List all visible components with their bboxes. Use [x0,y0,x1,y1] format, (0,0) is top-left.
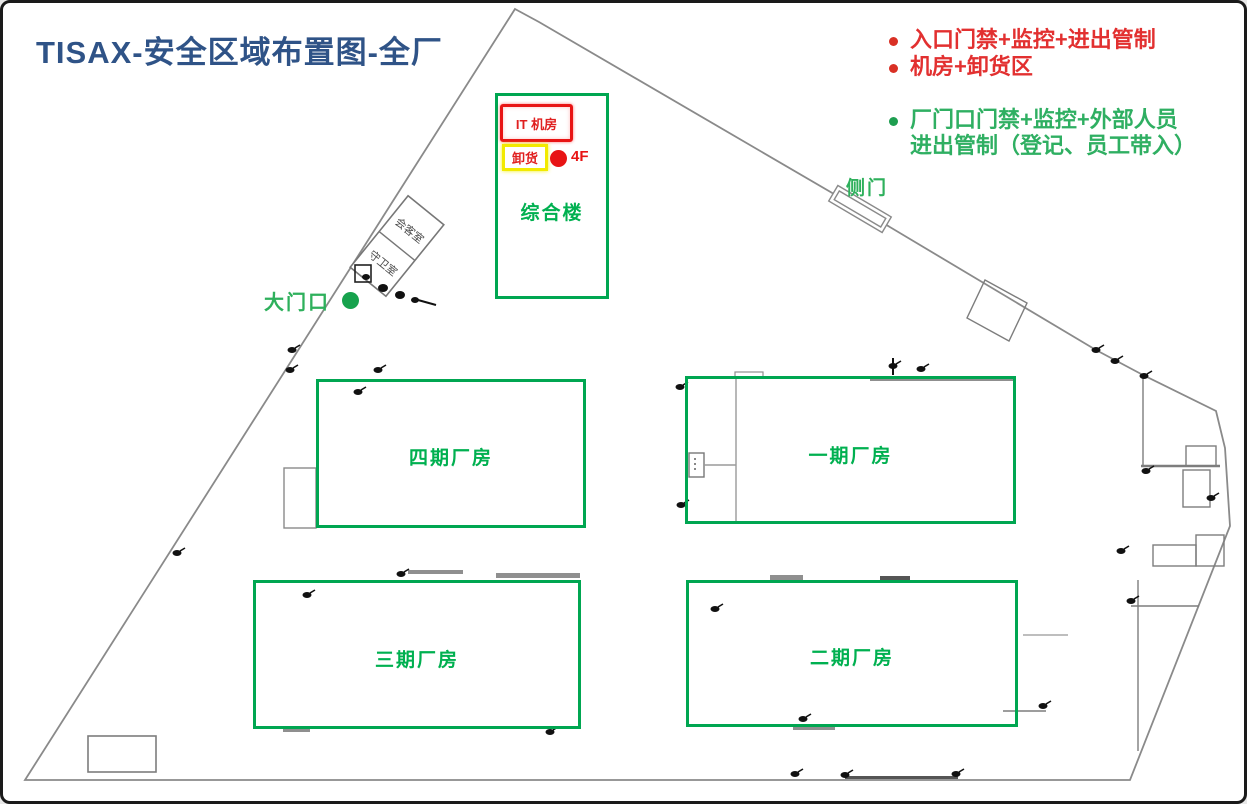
site-layout-slide: 会客室 守卫室 [0,0,1247,804]
legend-item-label: 机房+卸货区 [910,54,1033,80]
legend-item-label: 入口门禁+监控+进出管制 [910,27,1156,53]
camera-icon [1127,596,1140,604]
camera-icon [952,769,965,777]
legend-item-entrance: 入口门禁+监控+进出管制 [889,27,1239,53]
building-phase3: 三期厂房 [253,580,581,729]
building-phase4: 四期厂房 [316,379,586,528]
camera-icon [1142,466,1155,474]
it-server-room-label: IT 机房 [516,114,557,133]
legend-spacer [889,81,1239,107]
building-phase2: 二期厂房 [686,580,1018,727]
camera-icon [1117,546,1130,554]
building-phase2-label: 二期厂房 [689,643,1015,670]
camera-icon [397,569,410,577]
building-phase3-label: 三期厂房 [256,645,578,672]
camera-icon [173,548,186,556]
outbuilding [88,736,156,772]
camera-icon [1092,345,1105,353]
legend-item-line2: 进出管制（登记、员工带入） [910,133,1196,159]
camera-icon [917,364,930,372]
main-gate-label: 大门口 [264,286,330,315]
it-server-room-box: IT 机房 [500,104,573,142]
building-phase4-label: 四期厂房 [319,443,583,470]
legend-item-label: 厂门口门禁+监控+外部人员 进出管制（登记、员工带入） [910,107,1196,159]
red-bullet-icon [889,64,898,73]
side-gate-label: 侧门 [846,173,888,200]
legend-item-line1: 厂门口门禁+监控+外部人员 [910,107,1196,133]
legend-item-factorygate: 厂门口门禁+监控+外部人员 进出管制（登记、员工带入） [889,107,1239,159]
page-title: TISAX-安全区域布置图-全厂 [36,27,443,72]
building-phase1-label: 一期厂房 [688,441,1013,468]
camera-icon [1207,493,1220,501]
green-dot-icon [342,292,359,309]
phase4-annex [284,468,316,528]
camera-icon [791,769,804,777]
yard-shed [967,280,1027,341]
legend: 入口门禁+监控+进出管制 机房+卸货区 厂门口门禁+监控+外部人员 进出管制（登… [889,27,1239,160]
camera-icon [1039,701,1052,709]
legend-item-serverroom: 机房+卸货区 [889,54,1239,80]
camera-icon [889,361,902,369]
floor-4f-label: 4F [571,148,589,165]
unloading-area-box: 卸货 [502,144,548,171]
green-bullet-icon [889,117,898,126]
building-complex-label: 综合楼 [498,198,606,225]
unloading-area-label: 卸货 [512,148,538,167]
camera-icon [374,365,387,373]
red-bullet-icon [889,37,898,46]
red-dot-icon [550,150,567,167]
building-phase1: 一期厂房 [685,376,1016,524]
